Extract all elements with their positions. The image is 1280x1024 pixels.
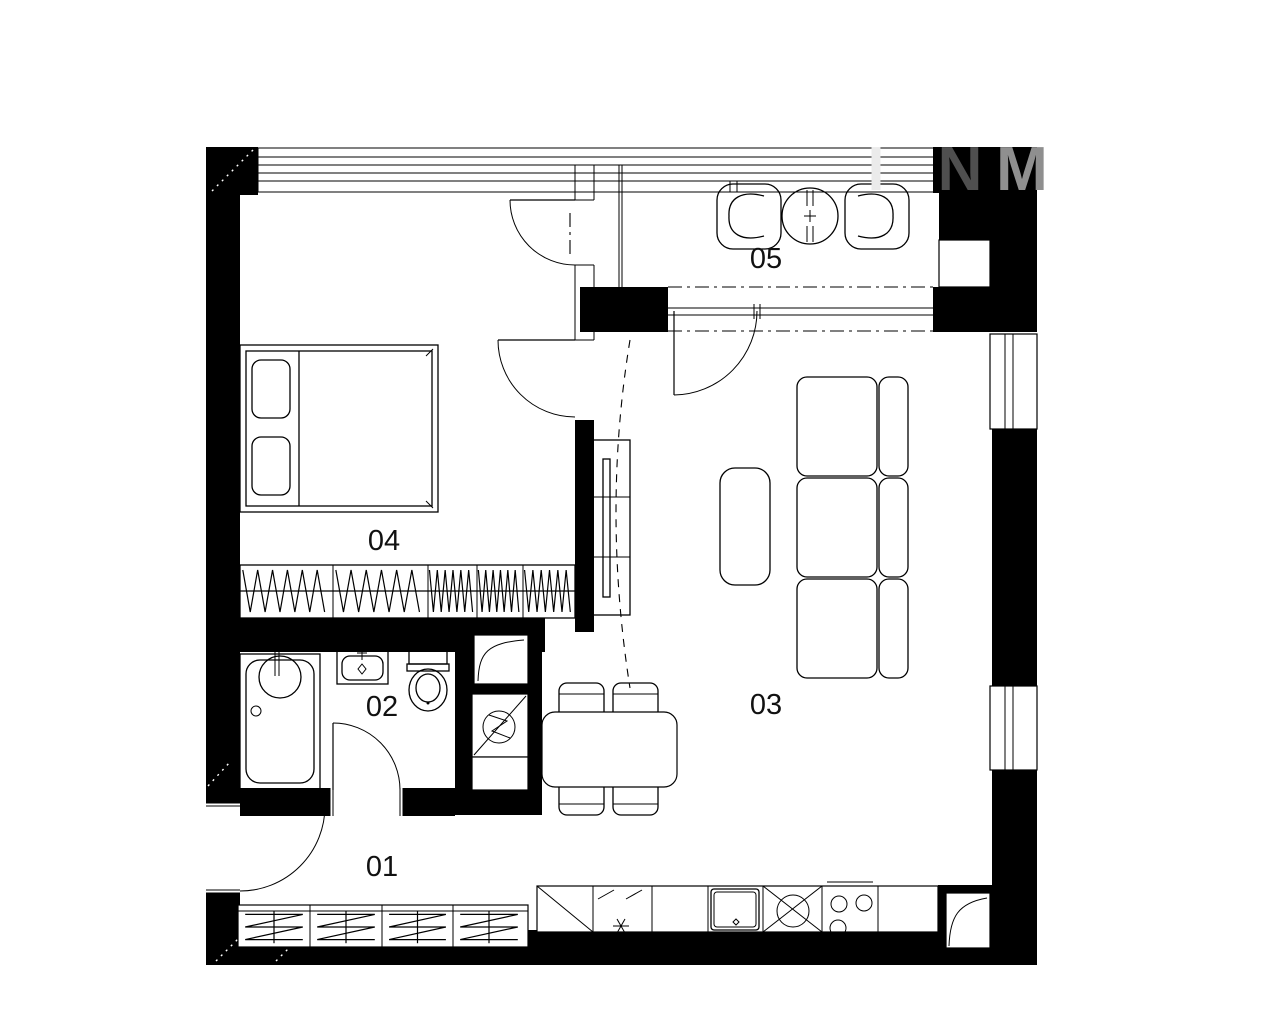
bedroom-right-wall (575, 420, 594, 632)
shaft-empty-box (472, 757, 528, 790)
balcony-wall-niche (939, 240, 990, 287)
balcony-living-divider-wall (580, 287, 668, 332)
hallway-cabinet (238, 905, 528, 947)
bottom-right-duct-niche (946, 893, 990, 948)
room-label-bedroom: 04 (368, 525, 400, 557)
floor-plan-page: 04 02 (0, 0, 1280, 1024)
entry-door-opening (206, 803, 240, 893)
toilet-dot (427, 702, 430, 705)
floor-plan-canvas: 04 02 (0, 0, 1280, 1024)
bathroom-door-opening (330, 788, 403, 816)
kitchen (537, 882, 938, 936)
page-background (0, 0, 1280, 1024)
room-label-bathroom: 02 (366, 691, 398, 723)
room-label-living-room: 03 (750, 689, 782, 721)
dining-table (542, 712, 677, 787)
watermark-letter: N (938, 135, 983, 204)
room-label-hallway: 01 (366, 851, 398, 883)
watermark-letter: I (867, 135, 884, 204)
room-label-balcony: 05 (750, 243, 782, 275)
balcony-wall-slit (933, 193, 939, 287)
watermark-letter: M (996, 135, 1048, 204)
right-wall-upper (992, 427, 1037, 688)
